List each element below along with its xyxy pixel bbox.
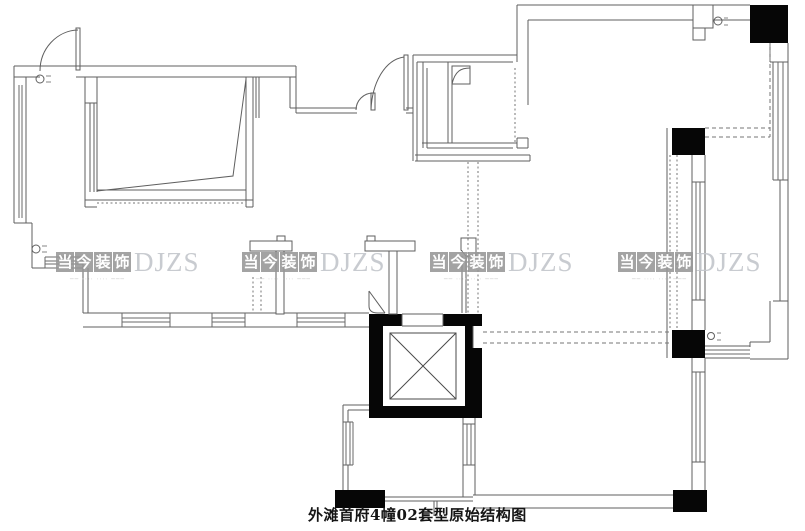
bedroom-walls bbox=[85, 77, 253, 207]
column-bottom-right bbox=[673, 490, 707, 512]
t-beam-2-stem bbox=[389, 251, 397, 314]
riser-circle-top bbox=[714, 17, 722, 25]
top-right-walls bbox=[517, 5, 788, 359]
bath-door-leaf bbox=[404, 55, 408, 110]
riser-circle-right bbox=[708, 333, 715, 340]
plan-caption: 外滩首府4幢02套型原始结构图 bbox=[308, 504, 527, 525]
t-beam-1-cap bbox=[250, 241, 292, 251]
riser-circle-entry bbox=[36, 75, 44, 83]
t-beam-1-bump bbox=[277, 236, 285, 241]
t-beam-2-bump bbox=[367, 236, 375, 241]
elevator-x-mark bbox=[390, 333, 456, 399]
bath-door-arc bbox=[371, 57, 404, 110]
entry-door-leaf bbox=[76, 28, 80, 70]
floor-plan-canvas: 当 今 装 饰 DJZS ── ⋅⋅⋅⋅ ⋅⋅⋅⋅ ─── 当 今 装 饰 DJ… bbox=[0, 0, 805, 531]
shaft-fixture-box bbox=[693, 5, 713, 28]
entry-door-arc bbox=[40, 30, 78, 71]
riser-circle-left bbox=[32, 245, 40, 253]
t-beam-1-stem bbox=[276, 251, 284, 314]
lobby-door-symbol bbox=[369, 291, 385, 313]
column-top-right bbox=[750, 5, 788, 43]
sink-fixture bbox=[452, 66, 470, 84]
elevator-notch bbox=[473, 326, 482, 348]
t-beams bbox=[250, 236, 415, 314]
exterior-walls bbox=[14, 66, 413, 327]
hall-door-arc bbox=[356, 93, 373, 110]
diagonal-lines bbox=[97, 79, 246, 191]
column-mid-right-upper bbox=[672, 128, 705, 155]
sink-basin-curve bbox=[452, 68, 470, 84]
elevator-shaft bbox=[369, 314, 482, 418]
pipe-risers bbox=[32, 17, 728, 340]
bathroom-walls bbox=[413, 5, 530, 161]
doors bbox=[40, 28, 408, 313]
dashed-lines bbox=[483, 43, 770, 343]
windows bbox=[19, 62, 783, 465]
elevator-door-gap bbox=[402, 314, 443, 326]
walls bbox=[14, 5, 788, 516]
window-glazing bbox=[19, 62, 783, 465]
column-mid-right-lower bbox=[672, 330, 705, 358]
bedroom-diagonals bbox=[97, 79, 246, 191]
dotted-guides bbox=[97, 43, 770, 343]
shaft-fixture-box-small bbox=[693, 28, 705, 40]
floor-plan-drawing bbox=[0, 0, 805, 531]
structural-columns bbox=[335, 5, 788, 512]
sink-box bbox=[452, 66, 470, 84]
elevator-shaft-wall bbox=[369, 314, 482, 418]
t-beam-2-cap bbox=[365, 241, 415, 251]
south-walls bbox=[343, 405, 673, 516]
middle-band-walls bbox=[667, 128, 705, 490]
dotted-lines bbox=[97, 68, 677, 330]
